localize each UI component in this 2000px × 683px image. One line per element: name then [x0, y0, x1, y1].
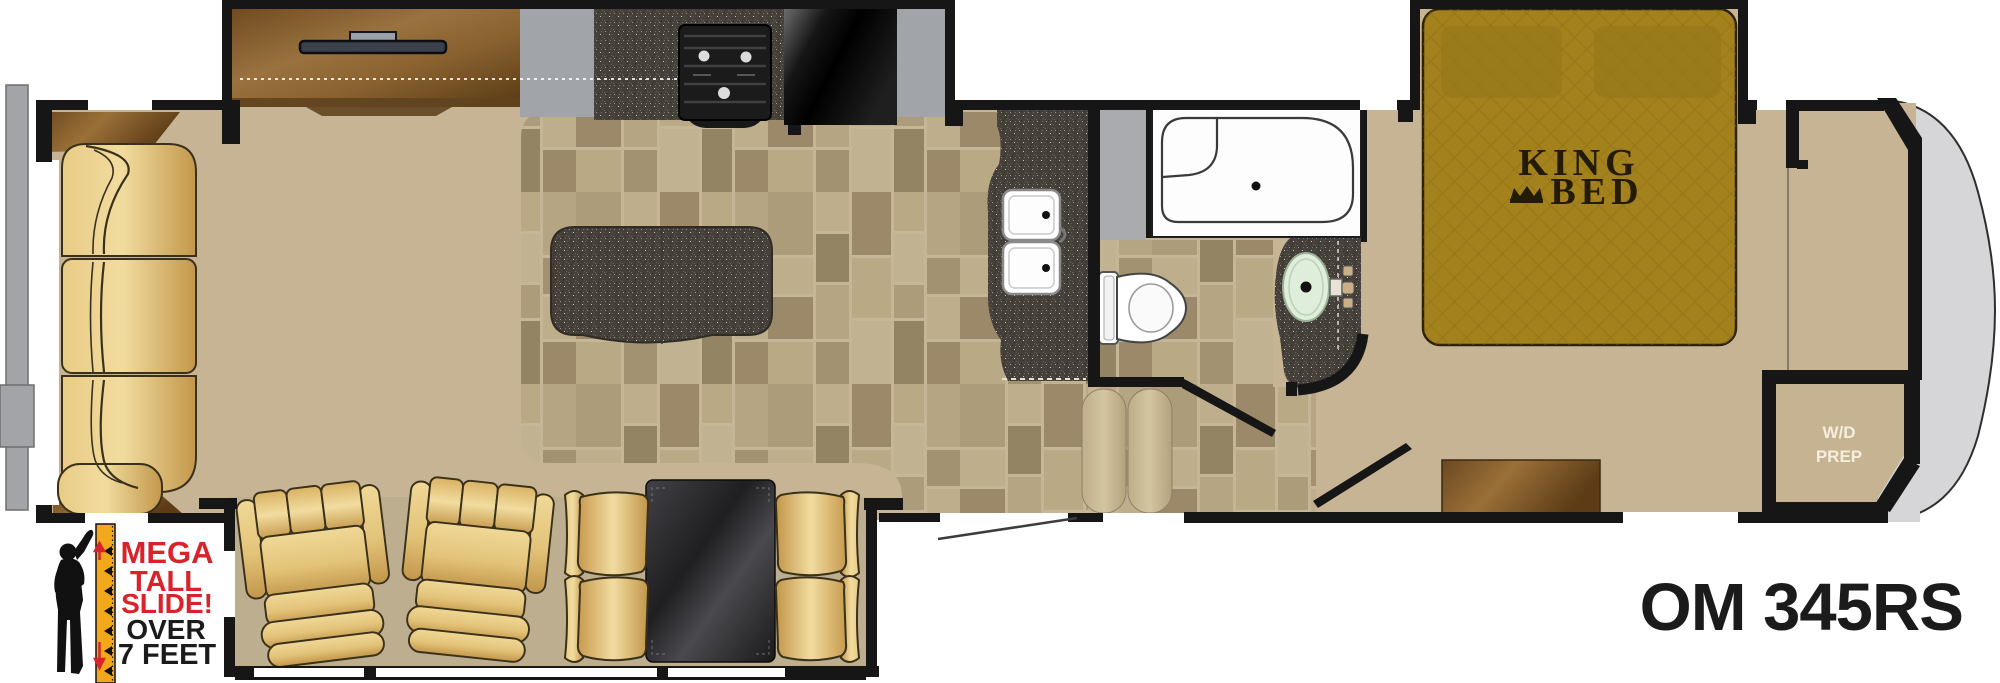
svg-text:MEGA: MEGA — [121, 535, 214, 570]
svg-text:7 FEET: 7 FEET — [118, 639, 217, 671]
svg-text:W/D: W/D — [1822, 423, 1855, 442]
svg-text:OM 345RS: OM 345RS — [1640, 570, 1963, 645]
svg-text:PREP: PREP — [1816, 447, 1862, 466]
svg-text:BED: BED — [1550, 171, 1643, 213]
